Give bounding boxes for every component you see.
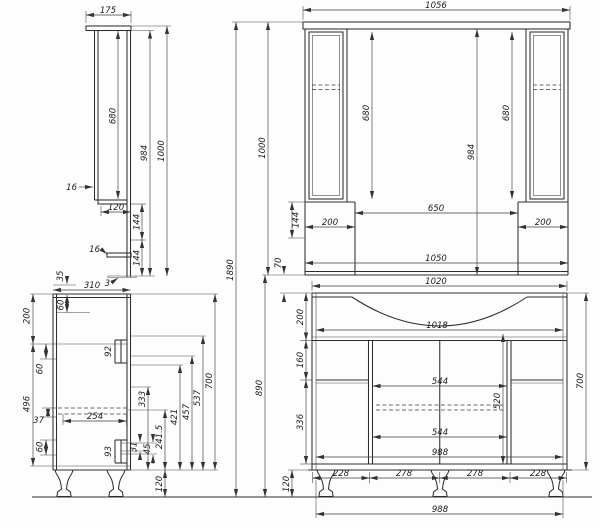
mirror-cabinet-front-view-stroke — [530, 32, 564, 199]
dim-vanity-body-988: 988 — [432, 448, 449, 458]
mirror-cabinet-side-view-stroke — [101, 249, 107, 254]
dim-vanity-333: 333 — [138, 391, 148, 407]
dim-vanity-door-544a: 544 — [432, 377, 448, 387]
mirror-cabinet-front-view-stroke — [303, 22, 570, 29]
dim-mirror-lower-144b: 144 — [133, 250, 143, 266]
dim-total-height: 1890 — [226, 259, 236, 281]
dim-mirror-shelf-thickness: 16 — [89, 245, 100, 255]
dim-mirror-front-width: 1056 — [425, 1, 447, 11]
dim-mirror-front-984: 984 — [467, 144, 477, 160]
mirror-cabinet-front-view-stroke — [309, 32, 343, 199]
dim-vanity-537: 537 — [193, 389, 203, 406]
dim-mirror-front-1000: 1000 — [258, 137, 268, 159]
dim-mirror-front-door-right: 680 — [502, 105, 512, 121]
dim-leg-278b: 278 — [467, 469, 484, 479]
dim-rail-31: 31 — [130, 442, 140, 453]
dim-vanity-door-544b: 544 — [432, 428, 448, 438]
vanity-front-view: 1020 1018 200 160 336 544 544 520 — [255, 275, 589, 518]
dim-vanity-60b: 60 — [36, 364, 46, 375]
vanity-mirror-dimension-drawing: 1890 175 16 680 120 16 3 — [0, 0, 600, 528]
dim-shelf-37: 37 — [33, 416, 44, 426]
dim-mirror-front-1050: 1050 — [425, 254, 447, 264]
dim-mirror-side-1000: 1000 — [157, 140, 167, 162]
dim-mirror-front-144: 144 — [292, 212, 302, 228]
dim-leg-278a: 278 — [396, 469, 413, 479]
mirror-cabinet-front-view-stroke — [313, 36, 340, 196]
mirror-cabinet-front-view-stroke — [534, 36, 561, 196]
overall-height-dimension: 1890 — [226, 22, 303, 497]
dim-shelf-254: 254 — [87, 412, 103, 422]
dim-wall-gap-35: 35 — [56, 271, 66, 282]
dim-vanity-door-height-520: 520 — [493, 393, 503, 409]
dim-vanity-leg-120: 120 — [282, 476, 292, 492]
technical-drawing-page: 1890 175 16 680 120 16 3 — [0, 0, 600, 528]
dim-mirror-side-984: 984 — [140, 145, 150, 161]
dim-vanity-60a: 60 — [57, 300, 67, 311]
dim-vanity-241-5: 241.5 — [155, 425, 165, 449]
dim-vanity-200: 200 — [23, 308, 33, 324]
dim-mirror-lower-144a: 144 — [133, 214, 143, 230]
dim-vanity-drawer-160: 160 — [296, 352, 306, 368]
dim-vanity-apron-200: 200 — [296, 309, 306, 325]
dim-mirror-door-height: 680 — [109, 108, 119, 124]
dim-vanity-890: 890 — [255, 380, 265, 396]
dim-vanity-lower-336: 336 — [296, 413, 306, 430]
mirror-cabinet-side-view: 175 16 680 120 16 3 144 144 — [66, 6, 171, 289]
dim-cutout-92: 92 — [104, 346, 114, 357]
dim-mirror-front-door-left: 680 — [362, 105, 372, 121]
dim-mirror-bottom-edge: 3 — [105, 279, 110, 289]
dim-mirror-front-200-right: 200 — [535, 218, 551, 228]
dim-vanity-front-700: 700 — [576, 373, 586, 389]
dim-mirror-front-650: 650 — [428, 204, 444, 214]
dim-mirror-door-thickness: 16 — [66, 183, 77, 193]
dim-vanity-base-988: 988 — [432, 505, 449, 515]
mirror-cabinet-front-view: 1056 680 680 984 1000 — [258, 1, 570, 301]
dim-leg-228a: 228 — [333, 469, 350, 479]
leg-side-back — [55, 470, 73, 497]
mirror-cabinet-side-view-stroke — [86, 26, 131, 31]
dim-vanity-496: 496 — [23, 395, 33, 412]
dim-mirror-side-width: 175 — [100, 6, 116, 16]
dim-vanity-top-width: 1020 — [425, 277, 447, 287]
leg-side-front — [107, 470, 125, 497]
dim-vanity-depth-310: 310 — [84, 281, 100, 291]
dim-vanity-60c: 60 — [36, 442, 46, 453]
dim-vanity-side-700: 700 — [205, 373, 215, 389]
dim-mirror-front-200-left: 200 — [322, 218, 338, 228]
dim-vanity-421: 421 — [170, 409, 180, 425]
dim-vanity-side-leg-120: 120 — [155, 476, 165, 492]
dim-vanity-457: 457 — [182, 403, 192, 420]
vanity-side-view: 310 35 60 200 496 60 254 37 — [23, 271, 219, 497]
dim-mirror-shelf-depth: 120 — [108, 203, 124, 213]
dim-vanity-inner-width: 1018 — [426, 321, 448, 331]
dim-block-93: 93 — [104, 446, 114, 457]
dim-leg-228b: 228 — [530, 469, 547, 479]
leg-front-right — [547, 470, 565, 497]
mirror-cabinet-side-view-stroke — [111, 278, 118, 283]
dim-gap-70: 70 — [274, 258, 284, 269]
